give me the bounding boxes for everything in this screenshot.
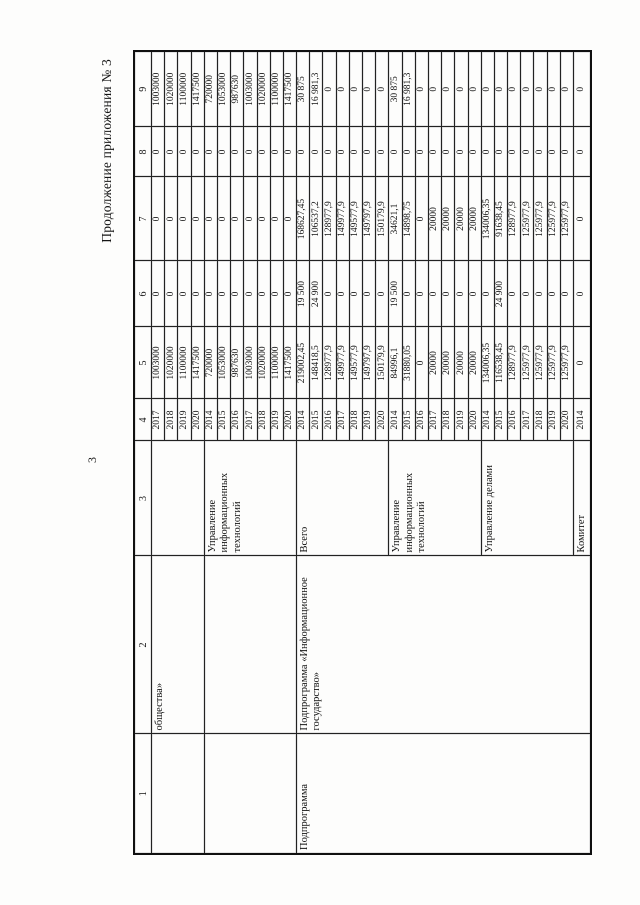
amount-cell-c6: 0 — [178, 261, 191, 327]
amount-cell-c8: 0 — [204, 127, 217, 177]
amount-cell-c6: 0 — [165, 261, 178, 327]
year-cell: 2015 — [310, 399, 323, 441]
amount-cell-c9: 0 — [428, 51, 441, 127]
amount-cell-c6: 24 900 — [494, 261, 507, 327]
document-title: Продолжение приложения № 3 — [99, 59, 115, 267]
amount-cell-c8: 0 — [191, 127, 204, 177]
amount-cell-c8: 0 — [481, 127, 494, 177]
amount-cell-c9: 0 — [442, 51, 455, 127]
amount-cell-c9: 0 — [455, 51, 468, 127]
amount-cell-c5: 31880,05 — [402, 327, 415, 399]
amount-cell-c6: 0 — [508, 261, 521, 327]
amount-cell-c7: 0 — [415, 177, 428, 261]
table-row: Управление информационных технологий2014… — [204, 51, 217, 854]
col3-label-cell: Комитет — [574, 441, 592, 556]
column-number-header-row: 123456789 — [134, 51, 152, 854]
amount-cell-c7: 0 — [165, 177, 178, 261]
amount-cell-c8: 0 — [547, 127, 560, 177]
column-number-header: 3 — [134, 441, 152, 556]
amount-cell-c5: 987630 — [231, 327, 244, 399]
amount-cell-c7: 128977,9 — [508, 177, 521, 261]
amount-cell-c9: 30 875 — [297, 51, 310, 127]
amount-cell-c8: 0 — [231, 127, 244, 177]
year-cell: 2017 — [244, 399, 257, 441]
amount-cell-c6: 0 — [442, 261, 455, 327]
amount-cell-c7: 150179,9 — [376, 177, 389, 261]
amount-cell-c8: 0 — [363, 127, 376, 177]
amount-cell-c7: 34621,1 — [389, 177, 402, 261]
year-cell: 2017 — [521, 399, 534, 441]
col1-label-cell — [204, 734, 296, 854]
amount-cell-c7: 0 — [283, 177, 296, 261]
amount-cell-c9: 0 — [574, 51, 592, 127]
amount-cell-c5: 0 — [415, 327, 428, 399]
amount-cell-c8: 0 — [323, 127, 336, 177]
amount-cell-c5: 20000 — [442, 327, 455, 399]
amount-cell-c5: 1003000 — [152, 327, 165, 399]
amount-cell-c5: 84996,1 — [389, 327, 402, 399]
amount-cell-c9: 1003000 — [244, 51, 257, 127]
amount-cell-c9: 1053000 — [217, 51, 230, 127]
amount-cell-c8: 0 — [283, 127, 296, 177]
amount-cell-c8: 0 — [244, 127, 257, 177]
col1-label-cell: Подпрограмма — [297, 734, 592, 854]
amount-cell-c6: 0 — [191, 261, 204, 327]
year-cell: 2017 — [152, 399, 165, 441]
amount-cell-c7: 20000 — [428, 177, 441, 261]
year-cell: 2014 — [204, 399, 217, 441]
amount-cell-c6: 19 500 — [297, 261, 310, 327]
table-row: ПодпрограммаПодпрограмма «Информационное… — [297, 51, 310, 854]
amount-cell-c7: 149577,9 — [349, 177, 362, 261]
amount-cell-c5: 125977,9 — [521, 327, 534, 399]
amount-cell-c7: 0 — [244, 177, 257, 261]
amount-cell-c9: 1100000 — [270, 51, 283, 127]
year-cell: 2019 — [455, 399, 468, 441]
amount-cell-c8: 0 — [402, 127, 415, 177]
year-cell: 2018 — [349, 399, 362, 441]
amount-cell-c5: 1020000 — [257, 327, 270, 399]
amount-cell-c6: 0 — [257, 261, 270, 327]
col2-label-cell — [204, 556, 296, 734]
table-body: общества»2017100300000010030002018102000… — [152, 51, 592, 854]
amount-cell-c8: 0 — [428, 127, 441, 177]
amount-cell-c8: 0 — [442, 127, 455, 177]
year-cell: 2019 — [178, 399, 191, 441]
amount-cell-c5: 116538,45 — [494, 327, 507, 399]
amount-cell-c9: 1020000 — [165, 51, 178, 127]
amount-cell-c6: 0 — [534, 261, 547, 327]
amount-cell-c5: 128977,9 — [323, 327, 336, 399]
amount-cell-c9: 1417500 — [191, 51, 204, 127]
amount-cell-c8: 0 — [376, 127, 389, 177]
amount-cell-c8: 0 — [257, 127, 270, 177]
amount-cell-c7: 0 — [270, 177, 283, 261]
year-cell: 2014 — [574, 399, 592, 441]
col3-label-cell: Управление делами — [481, 441, 573, 556]
amount-cell-c5: 149797,9 — [363, 327, 376, 399]
year-cell: 2016 — [415, 399, 428, 441]
amount-cell-c7: 0 — [217, 177, 230, 261]
amount-cell-c7: 0 — [191, 177, 204, 261]
amount-cell-c5: 128977,9 — [508, 327, 521, 399]
amount-cell-c9: 1100000 — [178, 51, 191, 127]
rotated-canvas: 3 Продолжение приложения № 3 123456789 о… — [0, 0, 640, 905]
amount-cell-c6: 0 — [402, 261, 415, 327]
amount-cell-c8: 0 — [152, 127, 165, 177]
amount-cell-c7: 0 — [178, 177, 191, 261]
year-cell: 2020 — [191, 399, 204, 441]
column-number-header: 1 — [134, 734, 152, 854]
amount-cell-c7: 0 — [204, 177, 217, 261]
year-cell: 2014 — [297, 399, 310, 441]
col3-label-cell — [152, 441, 205, 556]
amount-cell-c5: 720000 — [204, 327, 217, 399]
col2-label-cell: Подпрограмма «Информационное государство… — [297, 556, 592, 734]
amount-cell-c9: 0 — [376, 51, 389, 127]
amount-cell-c5: 1100000 — [270, 327, 283, 399]
amount-cell-c5: 149577,9 — [349, 327, 362, 399]
amount-cell-c9: 1003000 — [152, 51, 165, 127]
amount-cell-c6: 0 — [547, 261, 560, 327]
amount-cell-c6: 0 — [152, 261, 165, 327]
amount-cell-c7: 14898,75 — [402, 177, 415, 261]
amount-cell-c9: 0 — [349, 51, 362, 127]
amount-cell-c9: 0 — [481, 51, 494, 127]
amount-cell-c6: 0 — [363, 261, 376, 327]
amount-cell-c8: 0 — [415, 127, 428, 177]
amount-cell-c7: 20000 — [455, 177, 468, 261]
amount-cell-c5: 20000 — [455, 327, 468, 399]
amount-cell-c7: 0 — [257, 177, 270, 261]
amount-cell-c6: 0 — [349, 261, 362, 327]
year-cell: 2020 — [376, 399, 389, 441]
amount-cell-c9: 720000 — [204, 51, 217, 127]
amount-cell-c8: 0 — [336, 127, 349, 177]
amount-cell-c9: 16 981,3 — [310, 51, 323, 127]
column-number-header: 6 — [134, 261, 152, 327]
amount-cell-c7: 91638,45 — [494, 177, 507, 261]
col2-label-cell: общества» — [152, 556, 205, 734]
amount-cell-c8: 0 — [165, 127, 178, 177]
year-cell: 2015 — [494, 399, 507, 441]
amount-cell-c6: 0 — [231, 261, 244, 327]
amount-cell-c8: 0 — [494, 127, 507, 177]
amount-cell-c6: 0 — [415, 261, 428, 327]
year-cell: 2014 — [389, 399, 402, 441]
amount-cell-c6: 19 500 — [389, 261, 402, 327]
amount-cell-c9: 0 — [508, 51, 521, 127]
amount-cell-c9: 0 — [415, 51, 428, 127]
year-cell: 2015 — [402, 399, 415, 441]
col1-label-cell — [152, 734, 205, 854]
amount-cell-c7: 149977,9 — [336, 177, 349, 261]
amount-cell-c5: 1003000 — [244, 327, 257, 399]
amount-cell-c5: 149977,9 — [336, 327, 349, 399]
amount-cell-c6: 0 — [428, 261, 441, 327]
col3-label-cell: Управление информационных технологий — [204, 441, 296, 556]
amount-cell-c9: 1417500 — [283, 51, 296, 127]
amount-cell-c7: 125977,9 — [534, 177, 547, 261]
amount-cell-c9: 987630 — [231, 51, 244, 127]
amount-cell-c5: 134006,35 — [481, 327, 494, 399]
year-cell: 2017 — [336, 399, 349, 441]
year-cell: 2016 — [508, 399, 521, 441]
year-cell: 2018 — [442, 399, 455, 441]
amount-cell-c5: 125977,9 — [560, 327, 573, 399]
amount-cell-c5: 1100000 — [178, 327, 191, 399]
amount-cell-c6: 0 — [323, 261, 336, 327]
amount-cell-c6: 0 — [270, 261, 283, 327]
amount-cell-c7: 134006,35 — [481, 177, 494, 261]
col3-label-cell: Управление информационных технологий — [389, 441, 481, 556]
amount-cell-c8: 0 — [455, 127, 468, 177]
year-cell: 2017 — [428, 399, 441, 441]
column-number-header: 7 — [134, 177, 152, 261]
col3-label-cell: Всего — [297, 441, 389, 556]
year-cell: 2019 — [363, 399, 376, 441]
column-number-header: 4 — [134, 399, 152, 441]
amount-cell-c5: 20000 — [428, 327, 441, 399]
year-cell: 2018 — [257, 399, 270, 441]
year-cell: 2019 — [547, 399, 560, 441]
amount-cell-c5: 1053000 — [217, 327, 230, 399]
amount-cell-c6: 24 900 — [310, 261, 323, 327]
year-cell: 2016 — [323, 399, 336, 441]
budget-table: 123456789 общества»201710030000001003000… — [133, 50, 592, 855]
amount-cell-c8: 0 — [270, 127, 283, 177]
amount-cell-c9: 30 875 — [389, 51, 402, 127]
amount-cell-c9: 0 — [494, 51, 507, 127]
year-cell: 2018 — [165, 399, 178, 441]
table-row: общества»201710030000001003000 — [152, 51, 165, 854]
amount-cell-c6: 0 — [521, 261, 534, 327]
year-cell: 2014 — [481, 399, 494, 441]
column-number-header: 8 — [134, 127, 152, 177]
amount-cell-c5: 20000 — [468, 327, 481, 399]
amount-cell-c6: 0 — [244, 261, 257, 327]
amount-cell-c5: 125977,9 — [547, 327, 560, 399]
amount-cell-c9: 16 981,3 — [402, 51, 415, 127]
scanned-document-page: 3 Продолжение приложения № 3 123456789 о… — [0, 0, 640, 905]
amount-cell-c8: 0 — [217, 127, 230, 177]
amount-cell-c9: 0 — [336, 51, 349, 127]
amount-cell-c7: 128977,9 — [323, 177, 336, 261]
year-cell: 2020 — [468, 399, 481, 441]
amount-cell-c5: 1417500 — [283, 327, 296, 399]
amount-cell-c6: 0 — [455, 261, 468, 327]
amount-cell-c8: 0 — [574, 127, 592, 177]
amount-cell-c6: 0 — [468, 261, 481, 327]
page-number: 3 — [85, 443, 100, 477]
amount-cell-c6: 0 — [376, 261, 389, 327]
amount-cell-c6: 0 — [217, 261, 230, 327]
amount-cell-c7: 149797,9 — [363, 177, 376, 261]
column-number-header: 9 — [134, 51, 152, 127]
amount-cell-c9: 0 — [363, 51, 376, 127]
amount-cell-c7: 0 — [152, 177, 165, 261]
amount-cell-c6: 0 — [481, 261, 494, 327]
year-cell: 2019 — [270, 399, 283, 441]
amount-cell-c9: 0 — [521, 51, 534, 127]
column-number-header: 2 — [134, 556, 152, 734]
amount-cell-c6: 0 — [574, 261, 592, 327]
year-cell: 2018 — [534, 399, 547, 441]
amount-cell-c7: 168627,45 — [297, 177, 310, 261]
amount-cell-c9: 0 — [534, 51, 547, 127]
amount-cell-c7: 125977,9 — [547, 177, 560, 261]
amount-cell-c9: 0 — [560, 51, 573, 127]
amount-cell-c9: 0 — [468, 51, 481, 127]
amount-cell-c8: 0 — [297, 127, 310, 177]
amount-cell-c8: 0 — [560, 127, 573, 177]
amount-cell-c8: 0 — [178, 127, 191, 177]
amount-cell-c7: 0 — [231, 177, 244, 261]
amount-cell-c6: 0 — [204, 261, 217, 327]
amount-cell-c5: 1417500 — [191, 327, 204, 399]
amount-cell-c8: 0 — [468, 127, 481, 177]
amount-cell-c8: 0 — [508, 127, 521, 177]
amount-cell-c6: 0 — [560, 261, 573, 327]
amount-cell-c5: 0 — [574, 327, 592, 399]
year-cell: 2016 — [231, 399, 244, 441]
amount-cell-c7: 125977,9 — [560, 177, 573, 261]
amount-cell-c6: 0 — [336, 261, 349, 327]
amount-cell-c5: 148418,5 — [310, 327, 323, 399]
amount-cell-c5: 219002,45 — [297, 327, 310, 399]
amount-cell-c9: 0 — [323, 51, 336, 127]
amount-cell-c8: 0 — [534, 127, 547, 177]
amount-cell-c9: 0 — [547, 51, 560, 127]
column-number-header: 5 — [134, 327, 152, 399]
amount-cell-c9: 1020000 — [257, 51, 270, 127]
amount-cell-c7: 125977,9 — [521, 177, 534, 261]
amount-cell-c7: 106537,2 — [310, 177, 323, 261]
amount-cell-c7: 20000 — [468, 177, 481, 261]
year-cell: 2015 — [217, 399, 230, 441]
amount-cell-c7: 20000 — [442, 177, 455, 261]
amount-cell-c6: 0 — [283, 261, 296, 327]
amount-cell-c8: 0 — [521, 127, 534, 177]
year-cell: 2020 — [560, 399, 573, 441]
amount-cell-c7: 0 — [574, 177, 592, 261]
amount-cell-c5: 125977,9 — [534, 327, 547, 399]
amount-cell-c8: 0 — [349, 127, 362, 177]
amount-cell-c8: 0 — [389, 127, 402, 177]
amount-cell-c8: 0 — [310, 127, 323, 177]
amount-cell-c5: 1020000 — [165, 327, 178, 399]
year-cell: 2020 — [283, 399, 296, 441]
amount-cell-c5: 150179,9 — [376, 327, 389, 399]
